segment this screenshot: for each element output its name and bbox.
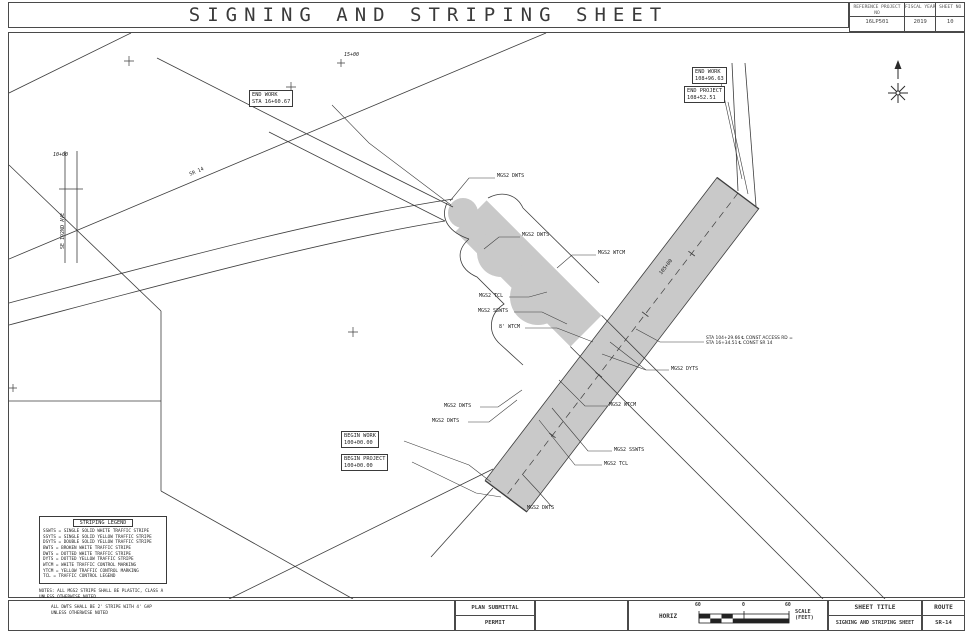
callout-end-work: END WORK 108+96.63 [692,67,727,84]
scale-cell: HORIZ 60 0 60 SCALE (FEET) [628,600,828,631]
sheet-title-label: SHEET TITLE [829,601,921,616]
sheet-title-banner: SIGNING AND STRIPING SHEET [8,2,849,28]
legend-item: TCL = TRAFFIC CONTROL LEGEND [43,574,163,580]
tag-mgs2-sswts: MGS2 SSWTS [614,448,644,454]
callout-begin-project: BEGIN PROJECT 100+00.00 [341,454,388,471]
north-arrow-icon [888,60,908,103]
legend-note-1: NOTES: ALL MGS2 STRIPE SHALL BE PLASTIC,… [39,589,167,600]
title-block-info: REFERENCE PROJECT NO 16LP501 FISCAL YEAR… [849,2,965,32]
callout-end-project: END PROJECT 108+52.51 [684,86,725,103]
fiscal-year-label: FISCAL YEAR [905,3,935,17]
striping-legend: STRIPING LEGEND SSWTS = SINGLE SOLID WHI… [39,516,167,616]
fiscal-year-col: FISCAL YEAR 2019 [905,3,936,31]
route-cell: ROUTE SR-14 [922,600,965,631]
road-lines [9,33,885,599]
submittal-cell: PLAN SUBMITTAL PERMIT [455,600,535,631]
reference-project-col: REFERENCE PROJECT NO 16LP501 [850,3,905,31]
sheet-title-cell: SHEET TITLE SIGNING AND STRIPING SHEET [828,600,922,631]
road-label-se192nd: SE 192ND AVE [61,213,67,249]
sheet-no-col: SHEET NO 10 [936,3,964,31]
scale-num-right: 60 [785,603,791,608]
sheet-title-value: SIGNING AND STRIPING SHEET [829,616,921,631]
tag-mgs2-wtcm: MGS2 WTCM [609,403,636,409]
scale-num-left: 60 [695,603,701,608]
callout-line: END WORK [252,92,290,99]
tag-mgs2-dwts: MGS2 DWTS [522,233,549,239]
legend-item: SSWTS = SINGLE SOLID WHITE TRAFFIC STRIP… [43,529,163,535]
callout-line: END WORK [695,69,724,76]
tag-mgs2-wtcm: MGS2 WTCM [598,251,625,257]
tag-8ft-wtcm: 8' WTCM [499,325,520,331]
striping-legend-title: STRIPING LEGEND [73,519,134,527]
tag-mgs2-dyts: MGS2 DYTS [671,367,698,373]
reference-project-value: 16LP501 [850,17,904,31]
scale-num-zero: 0 [742,603,745,608]
station-equation: STA 104+29.66 ℄ CONST ACCESS RD = STA 16… [706,337,793,347]
tag-mgs2-tcl: MGS2 TCL [604,462,628,468]
callout-line: 108+52.51 [687,95,722,102]
sheet-no-value: 10 [936,17,964,31]
callout-end-work-sta: END WORK STA 16+60.67 [249,90,293,107]
tag-mgs2-dwts: MGS2 DWTS [444,404,471,410]
callout-line: BEGIN PROJECT [344,456,385,463]
reference-project-label: REFERENCE PROJECT NO [850,3,904,17]
station-label-15: 15+00 [344,53,359,59]
callout-line: BEGIN WORK [344,433,376,440]
callout-line: 108+96.63 [695,76,724,83]
fiscal-year-value: 2019 [905,17,935,31]
plan-submittal-label: PLAN SUBMITTAL [456,601,534,616]
sheet-no-label: SHEET NO [936,3,964,17]
station-equation-line: STA 16+34.51 ℄ CONST SR 14 [706,342,793,347]
route-label: ROUTE [923,601,964,616]
tag-mgs2-dwts: MGS2 DWTS [497,174,524,180]
permit-label: PERMIT [456,616,534,631]
bottom-empty-cell-2 [535,600,628,631]
plan-linework [9,33,966,599]
legend-note-2: ALL DWTS SHALL BE 2' STRIPE WITH 4' GAP … [51,605,167,616]
route-value: SR-14 [923,616,964,631]
page-title: SIGNING AND STRIPING SHEET [189,4,668,26]
callout-line: 100+00.00 [344,463,385,470]
striping-legend-box: STRIPING LEGEND SSWTS = SINGLE SOLID WHI… [39,516,167,584]
station-label-10: 10+00 [53,153,68,159]
scale-caption: SCALE (FEET) [795,609,814,621]
callout-begin-work: BEGIN WORK 100+00.00 [341,431,379,448]
scale-caption-line: (FEET) [795,615,814,621]
tag-mgs2-sswts: MGS2 SSWTS [478,309,508,315]
tag-mgs2-dwts: MGS2 DWTS [432,419,459,425]
tag-mgs2-dwts: MGS2 DWTS [527,506,554,512]
callout-line: END PROJECT [687,88,722,95]
scale-bar [697,609,797,627]
horiz-label: HORIZ [659,613,677,620]
callout-line: 100+00.00 [344,440,376,447]
tag-mgs2-tcl: MGS2 TCL [479,294,503,300]
callout-line: STA 16+60.67 [252,99,290,106]
plan-view: END WORK STA 16+60.67 END WORK 108+96.63… [8,32,965,598]
